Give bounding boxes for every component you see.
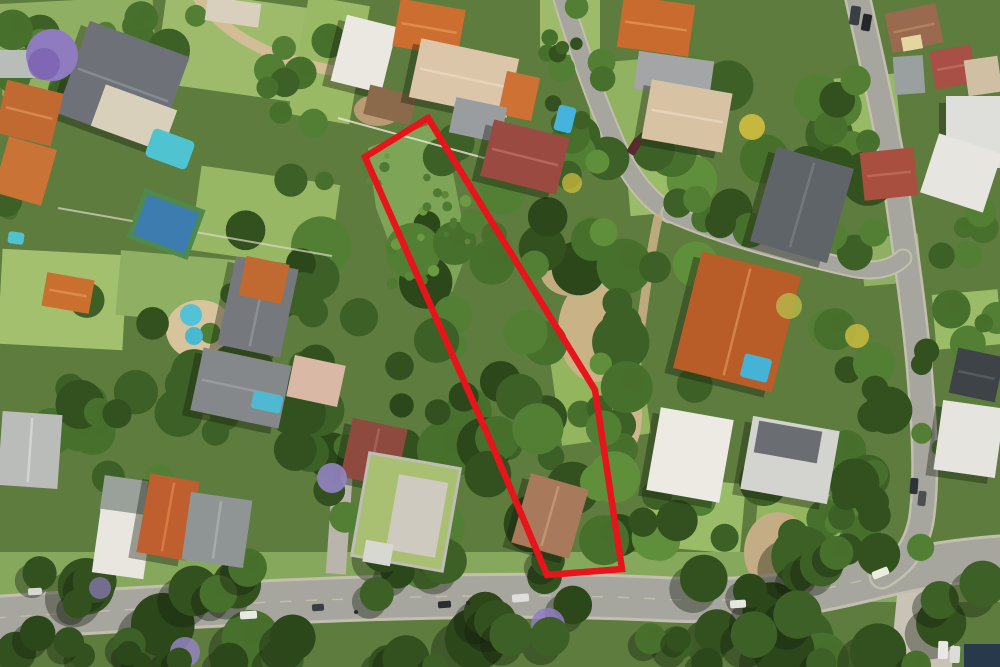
forest-top-right-block-tree-highlight — [723, 67, 746, 90]
forest-right-edge-a-tree-highlight — [939, 246, 951, 258]
meadow-speckle-tree-highlight — [383, 163, 388, 168]
car-group — [909, 478, 918, 495]
canopy-bottom-band-tree-highlight — [401, 641, 422, 662]
canopy-road-overhang-tree-highlight — [546, 622, 564, 640]
forest-top-center-tree-highlight — [282, 39, 293, 50]
jacaranda-tree — [89, 577, 111, 599]
yellow-tree — [562, 173, 582, 193]
pedestrian — [354, 610, 358, 614]
forest-central-tree-highlight — [315, 224, 342, 251]
forest-right-edge-b-tree-highlight — [920, 425, 929, 434]
canopy-bottom-band-tree-highlight — [244, 553, 261, 570]
canopy-bottom-band-tree-highlight — [704, 652, 718, 666]
forest-central-tree-highlight — [435, 403, 447, 415]
forest-bottom-right-block-tree-highlight — [673, 505, 692, 524]
canopy-road-overhang-tree-highlight — [177, 651, 188, 662]
canopy-bottom-band-tree-highlight — [373, 581, 388, 596]
canopy-bottom-band-tree-highlight — [747, 578, 762, 593]
car — [730, 599, 747, 608]
forest-top-center-tree-highlight — [297, 61, 312, 76]
car — [240, 611, 257, 620]
forest-upper-central-tree-highlight — [470, 212, 481, 223]
car — [438, 601, 451, 609]
van-group — [938, 641, 949, 659]
house-left-gable-group — [0, 411, 63, 489]
forest-bottom-right-block-tree-highlight — [871, 503, 886, 518]
forest-bottom-right-block-tree-highlight — [843, 485, 856, 498]
hedge-road-west-tree-highlight — [575, 39, 581, 45]
forest-right-edge-a-tree-highlight — [964, 330, 980, 346]
forest-right-edge-b-tree-highlight — [870, 348, 889, 367]
forest-top-right-block-tree-highlight — [694, 189, 706, 201]
meadow-speckle-tree-highlight — [446, 203, 450, 207]
forest-west-of-parcel-tree-highlight — [291, 433, 310, 452]
meadow-speckle-tree-highlight — [432, 266, 437, 271]
van — [938, 641, 949, 659]
meadow-speckle-tree-highlight — [467, 239, 470, 242]
forest-top-center-tree-highlight — [279, 104, 289, 114]
meadow-speckle-tree-highlight — [408, 273, 412, 277]
forest-central-tree-highlight — [514, 380, 535, 401]
forest-central-tree-highlight — [532, 254, 545, 267]
canopy-bottom-band-tree-highlight — [818, 652, 832, 666]
car — [312, 604, 324, 612]
canopy-bottom-band-tree-highlight — [74, 593, 87, 606]
forest-mid-left-tree-highlight — [149, 311, 164, 326]
car — [28, 588, 42, 596]
car-group — [512, 593, 530, 602]
yellow-tree — [845, 324, 869, 348]
forest-east-strip-tree-highlight — [618, 437, 633, 452]
forest-east-strip-tree-highlight — [595, 153, 606, 164]
forest-west-of-parcel-tree-highlight — [242, 215, 260, 233]
listing-photo — [0, 0, 1000, 667]
forest-top-road-tree-highlight — [548, 31, 555, 38]
forest-central-tree-highlight — [298, 252, 311, 265]
forest-right-edge-a-tree-highlight — [982, 316, 990, 324]
forest-east-strip-tree-highlight — [609, 458, 632, 481]
van — [950, 646, 961, 664]
house-tr-gray-small — [893, 55, 926, 95]
car-group — [28, 588, 42, 596]
canopy-bottom-band-tree-highlight — [978, 566, 999, 587]
forest-central-tree-highlight — [493, 422, 513, 442]
forest-central-tree-highlight — [399, 396, 410, 407]
forest-bottom-right-block-tree-highlight — [722, 527, 735, 540]
forest-top-center-tree-highlight — [311, 112, 324, 125]
forest-top-left-tree-highlight — [194, 8, 204, 18]
jacaranda-tree — [317, 463, 347, 493]
pool-kidney-b — [185, 327, 203, 345]
hedge-road-west-tree-highlight — [551, 97, 558, 104]
hedge-road-west-tree-highlight — [561, 43, 567, 49]
forest-right-edge-b-tree-highlight — [872, 379, 884, 391]
meadow-speckle-tree-highlight — [446, 232, 448, 234]
forest-top-right-block-tree-highlight — [853, 69, 867, 83]
canopy-bottom-band-tree-highlight — [749, 617, 770, 638]
forest-right-edge-b-tree-highlight — [918, 537, 930, 549]
canopy-bottom-band-tree-highlight — [36, 560, 51, 575]
pool-left-edge-group — [7, 231, 25, 245]
house-bl-gray-group — [182, 492, 253, 568]
forest-top-center-tree-highlight — [288, 168, 303, 183]
jacaranda-tree-shade — [28, 48, 60, 80]
car-group — [312, 604, 324, 612]
canopy-road-overhang-tree-highlight — [66, 631, 80, 645]
forest-east-strip-tree-highlight — [622, 368, 645, 391]
forest-top-right-block-tree-highlight — [727, 194, 746, 213]
forest-west-of-parcel-tree-highlight — [298, 278, 318, 298]
forest-central-tree-highlight — [397, 355, 410, 368]
meadow-speckle-tree-highlight — [426, 204, 430, 208]
forest-right-edge-b-tree-highlight — [831, 313, 850, 332]
meadow-speckle-tree-highlight — [453, 219, 456, 222]
forest-top-right-block-tree-highlight — [827, 115, 842, 130]
forest-top-right-block-tree-highlight — [866, 133, 877, 144]
forest-bottom-right-block-tree-highlight — [640, 511, 653, 524]
house-right-white-2-group — [926, 399, 1000, 485]
meadow-speckle-tree-highlight — [444, 192, 447, 195]
car — [909, 478, 918, 495]
meadow-speckle-tree-highlight — [426, 175, 429, 178]
forest-central-tree-highlight — [342, 506, 356, 520]
car-group — [917, 491, 927, 507]
canopy-bottom-band-tree-highlight — [833, 540, 848, 555]
meadow-speckle-tree-highlight — [420, 234, 423, 237]
forest-right-edge-a-tree-highlight — [966, 245, 978, 257]
house-tr-tan-2-group — [964, 56, 1000, 96]
forest-top-road-tree-highlight — [600, 69, 611, 80]
forest-east-strip-tree-highlight — [601, 222, 614, 235]
forest-top-right-block-tree-highlight — [717, 211, 731, 225]
forest-east-strip-tree-highlight — [599, 355, 609, 365]
canopy-bottom-band-tree-highlight — [793, 596, 815, 618]
pool-left-edge — [7, 231, 25, 245]
canopy-road-overhang-tree-highlight — [34, 620, 50, 636]
van-group — [950, 646, 961, 664]
canopy-bottom-band-tree-highlight — [872, 630, 897, 655]
meadow-speckle-tree-highlight — [437, 189, 441, 193]
house-right-red-group — [860, 147, 919, 200]
forest-central-tree-highlight — [449, 300, 467, 318]
house-tr-orange-1-group — [617, 0, 696, 57]
forest-top-center-tree-highlight — [265, 79, 275, 89]
forest-right-edge-b-tree-highlight — [870, 404, 884, 418]
forest-right-edge-a-tree-highlight — [947, 295, 964, 312]
house-br-white-modern-1 — [646, 407, 733, 503]
hedge-road-west-tree-highlight — [580, 113, 588, 121]
canopy-bottom-band-tree-highlight — [647, 627, 661, 641]
pedestrian — [466, 601, 470, 605]
yellow-tree — [739, 114, 765, 140]
car — [512, 593, 530, 602]
yellow-tree — [776, 293, 802, 319]
forest-central-tree-highlight — [424, 214, 436, 226]
canopy-road-overhang-tree-highlight — [225, 647, 242, 664]
forest-right-edge-b-tree-highlight — [842, 435, 860, 453]
forest-top-center-tree-highlight — [282, 71, 295, 84]
house-right-white-2 — [933, 400, 1000, 478]
forest-mid-left-tree-highlight — [114, 403, 127, 416]
forest-east-strip-tree-highlight — [652, 255, 666, 269]
forest-central-tree-highlight — [521, 316, 541, 336]
forest-central-tree-highlight — [355, 303, 372, 320]
house-tr-orange-1 — [617, 0, 696, 57]
meadow-speckle-tree-highlight — [464, 197, 469, 202]
meadow-speckle-tree-highlight — [391, 279, 396, 284]
canopy-road-overhang-tree-highlight — [676, 630, 687, 641]
house-br-white-modern-1-group — [638, 406, 734, 510]
house-tr-gray-small-group — [893, 55, 926, 95]
car-group — [730, 599, 747, 608]
car — [917, 491, 927, 507]
house-tr-tan-2 — [964, 56, 1000, 96]
pool-kidney-a — [180, 304, 202, 326]
forest-central-tree-highlight — [544, 202, 562, 220]
building-br-navy-group — [964, 644, 1000, 667]
forest-top-center-tree-highlight — [322, 174, 330, 182]
forest-top-road-tree-highlight — [599, 52, 611, 64]
meadow-speckle-tree-highlight — [387, 154, 389, 156]
forest-east-strip-tree-highlight — [614, 292, 627, 305]
forest-central-tree-highlight — [533, 410, 556, 433]
aerial-photo-svg — [0, 0, 1000, 667]
forest-right-edge-b-tree-highlight — [924, 342, 935, 353]
forest-bottom-right-block-tree-highlight — [874, 538, 893, 557]
car-group — [438, 601, 451, 609]
forest-west-of-parcel-tree-highlight — [310, 301, 324, 315]
forest-top-right-block-tree-highlight — [871, 222, 884, 235]
car-group — [240, 611, 257, 620]
canopy-road-overhang-tree-highlight — [288, 620, 309, 641]
canopy-road-overhang-tree-highlight — [507, 619, 526, 638]
canopy-road-overhang-tree-highlight — [126, 644, 137, 655]
canopy-bottom-band-tree-highlight — [569, 590, 586, 607]
canopy-bottom-band-tree-highlight — [699, 561, 720, 582]
forest-top-left-tree-highlight — [8, 15, 26, 33]
forest-mid-left-tree-highlight — [131, 376, 151, 396]
building-br-navy — [964, 644, 1000, 667]
